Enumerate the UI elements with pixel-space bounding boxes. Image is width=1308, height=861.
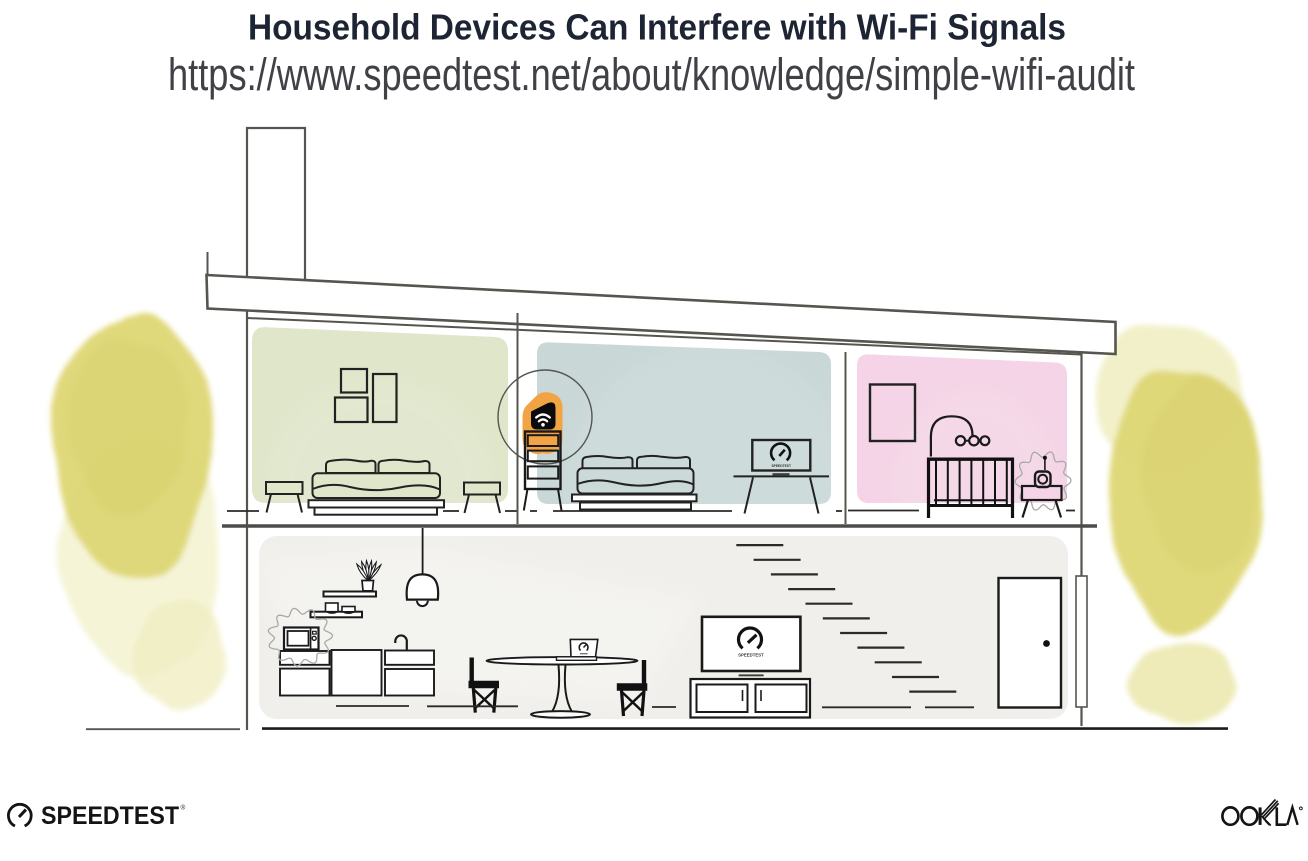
svg-text:Household Devices Can Interfer: Household Devices Can Interfere with Wi-… — [248, 7, 1066, 48]
svg-text:SPEEDTEST: SPEEDTEST — [772, 464, 792, 468]
svg-text:®: ® — [181, 804, 186, 812]
svg-text:https://www.speedtest.net/abou: https://www.speedtest.net/about/knowledg… — [168, 49, 1135, 100]
svg-text:SPEEDTEST: SPEEDTEST — [738, 653, 764, 658]
svg-text:SPEEDTEST: SPEEDTEST — [41, 803, 179, 830]
